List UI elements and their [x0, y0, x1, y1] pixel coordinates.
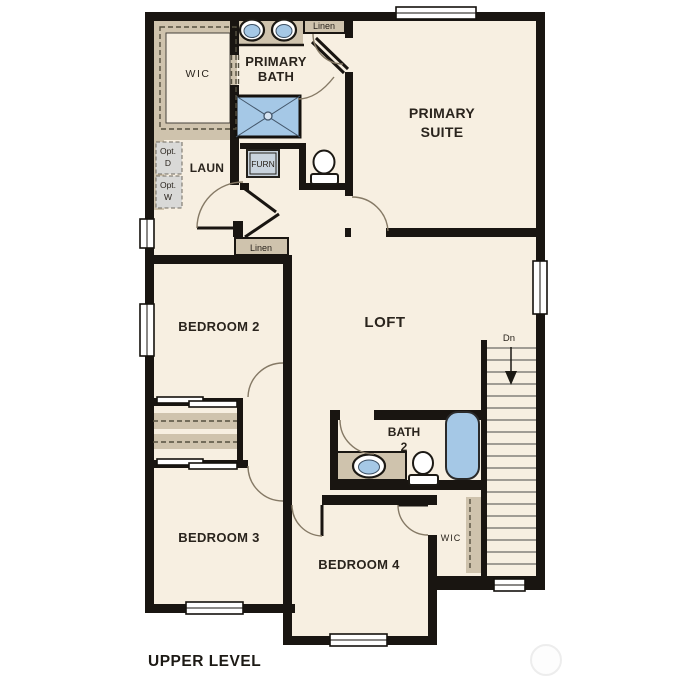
- bathtub-icon: [446, 412, 479, 479]
- wic-bedroom4-label: WIC: [441, 533, 462, 543]
- shower-icon: [236, 96, 300, 137]
- primary-bath-label-line1: PRIMARY: [245, 54, 307, 69]
- bedroom3-label: BEDROOM 3: [178, 530, 259, 545]
- bath2-label-line2: 2: [401, 440, 408, 454]
- floor-plan: WIC PRIMARY BATH Linen PRIMARY SUITE Opt…: [0, 0, 687, 687]
- level-title: UPPER LEVEL: [148, 653, 261, 670]
- linen-hall-label: Linen: [250, 243, 272, 253]
- opt-dryer-label-line2: D: [165, 158, 171, 168]
- stair-direction-label: Dn: [503, 333, 515, 344]
- primary-suite-label-line2: SUITE: [421, 124, 464, 140]
- bath2-label-line1: BATH: [388, 425, 420, 439]
- wic-primary-label: WIC: [186, 68, 211, 80]
- opt-washer-label-line1: Opt.: [160, 180, 176, 190]
- bedroom4-label: BEDROOM 4: [318, 557, 400, 572]
- floor-plan-page: WIC PRIMARY BATH Linen PRIMARY SUITE Opt…: [0, 0, 687, 687]
- laundry-label: LAUN: [190, 161, 225, 175]
- linen-upper-label: Linen: [313, 21, 335, 31]
- opt-dryer-label-line1: Opt.: [160, 146, 176, 156]
- opt-washer-label-line2: W: [164, 192, 172, 202]
- watermark-circle: [531, 645, 561, 675]
- wic4-rod-band: [466, 497, 482, 573]
- furnace-label: FURN: [251, 159, 275, 169]
- sink-bath2-icon: [353, 455, 385, 478]
- primary-bath-label-line2: BATH: [258, 69, 294, 84]
- bedroom2-label: BEDROOM 2: [178, 319, 259, 334]
- primary-suite-label-line1: PRIMARY: [409, 105, 476, 121]
- loft-label: LOFT: [364, 314, 405, 331]
